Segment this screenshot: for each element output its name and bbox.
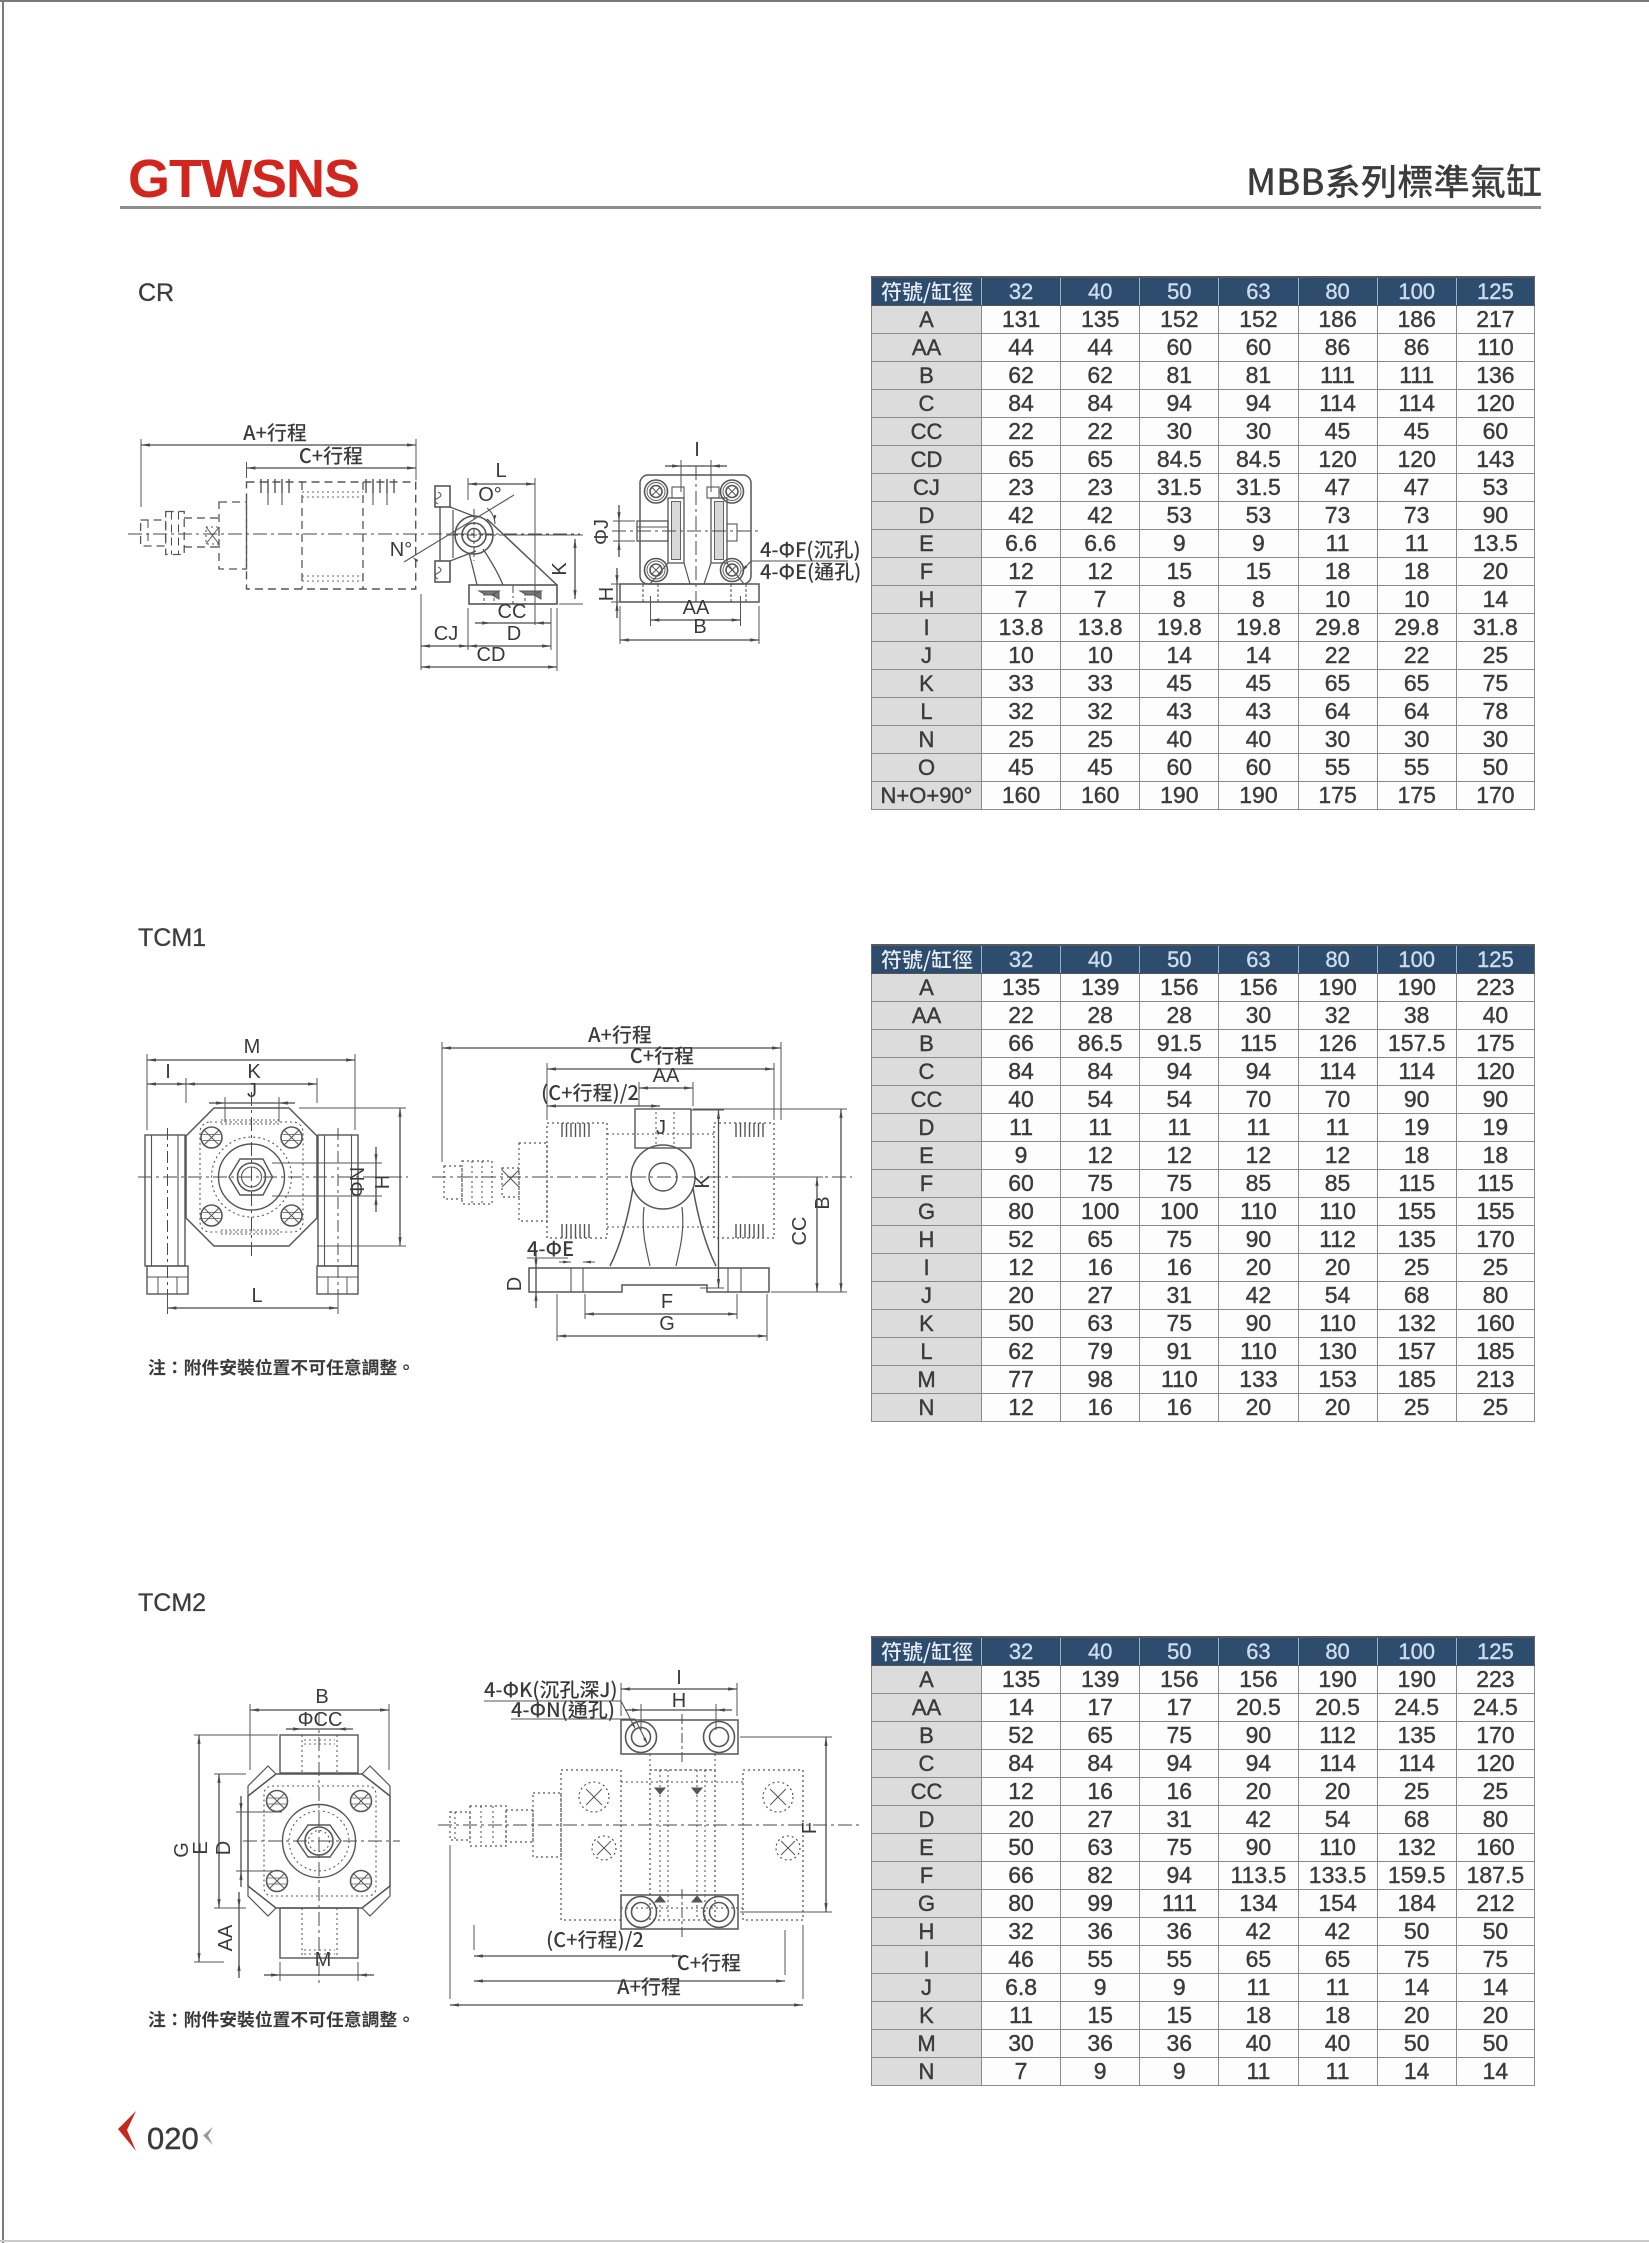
svg-text:CC: CC — [498, 601, 527, 623]
svg-text:D: D — [213, 1841, 235, 1855]
svg-text:L: L — [495, 460, 506, 482]
svg-text:CC: CC — [789, 1217, 811, 1246]
svg-text:B: B — [812, 1196, 834, 1209]
svg-text:I: I — [165, 1061, 171, 1083]
svg-text:D: D — [504, 1277, 526, 1291]
svg-text:B: B — [693, 616, 706, 638]
svg-text:G: G — [659, 1313, 675, 1335]
svg-text:CJ: CJ — [434, 623, 458, 645]
svg-text:F: F — [799, 1822, 821, 1834]
svg-text:M: M — [244, 1036, 261, 1058]
svg-text:K: K — [549, 562, 571, 576]
svg-text:N°: N° — [390, 539, 412, 561]
svg-text:M: M — [315, 1949, 332, 1971]
svg-text:K: K — [692, 1175, 714, 1189]
svg-text:E: E — [190, 1841, 212, 1854]
svg-text:ΦJ: ΦJ — [591, 519, 613, 545]
svg-text:ΦN: ΦN — [347, 1167, 369, 1197]
svg-text:H: H — [596, 587, 618, 601]
svg-text:I: I — [676, 1667, 682, 1689]
svg-text:J: J — [656, 1117, 666, 1139]
svg-text:O°: O° — [478, 484, 502, 506]
svg-text:I: I — [694, 439, 700, 461]
svg-text:H: H — [672, 1690, 686, 1712]
svg-text:ΦCC: ΦCC — [298, 1709, 343, 1731]
svg-text:D: D — [507, 623, 521, 645]
svg-text:F: F — [661, 1291, 673, 1313]
svg-text:L: L — [251, 1285, 262, 1307]
svg-text:AA: AA — [653, 1065, 680, 1087]
svg-text:B: B — [315, 1686, 328, 1708]
svg-text:CD: CD — [477, 644, 506, 666]
svg-text:AA: AA — [215, 1924, 237, 1951]
svg-text:H: H — [372, 1175, 394, 1189]
